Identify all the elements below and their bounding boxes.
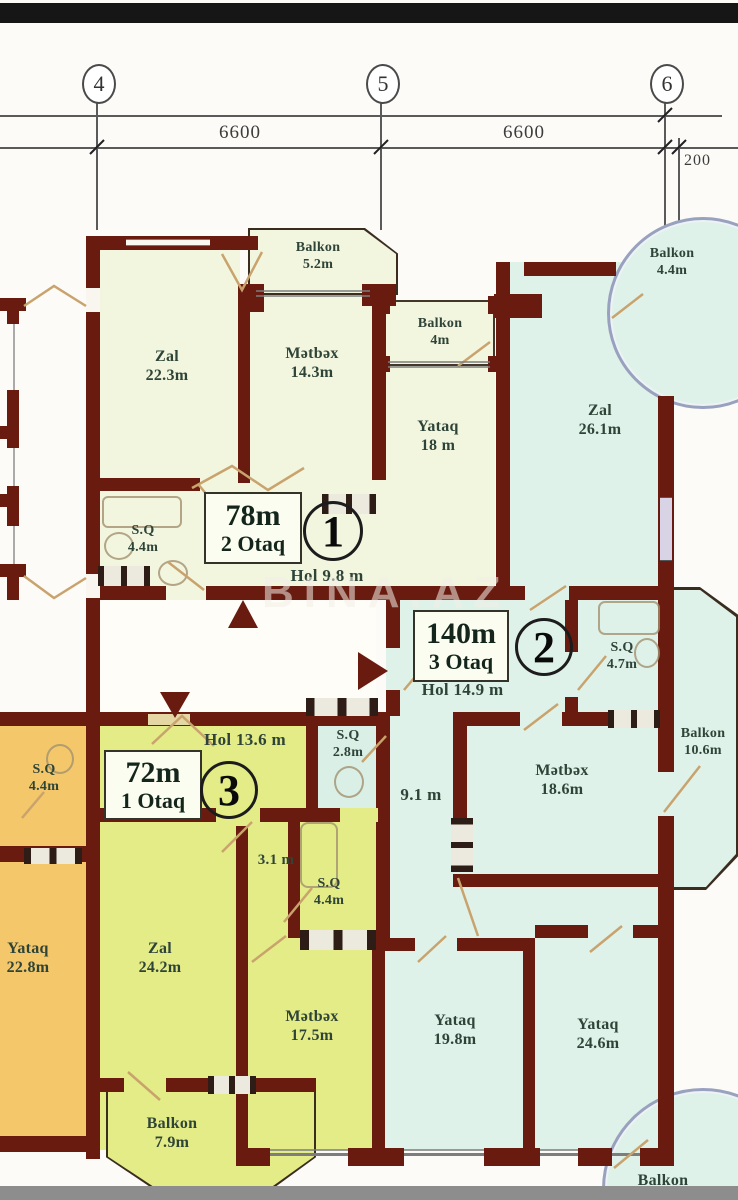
- room-name: Mətbəx: [285, 1008, 338, 1027]
- door-opening: [658, 772, 674, 816]
- bottom-gray-bar: [0, 1186, 738, 1200]
- window-box: [208, 1076, 256, 1094]
- window-box: [98, 566, 150, 586]
- wall-pier: [484, 1148, 540, 1166]
- door-opening: [588, 925, 633, 938]
- hol-text: Hol 14.9 m: [422, 680, 504, 700]
- room-name: S.Q: [317, 876, 340, 893]
- door-opening: [124, 1078, 166, 1092]
- room-area: 14.3m: [291, 364, 334, 383]
- dim-label-200: 200: [684, 152, 711, 170]
- label-apt3-sq: S.Q 4.4m: [300, 876, 358, 909]
- wall: [453, 874, 673, 887]
- wall-pier: [348, 1148, 404, 1166]
- room-area: 24.2m: [139, 959, 182, 978]
- label-apt3-balkon: Balkon 7.9m: [122, 1115, 222, 1153]
- room-name: Balkon: [650, 246, 695, 263]
- room-apt1-yataq: [383, 366, 495, 588]
- apt-rooms-count: 2 Otaq: [221, 532, 285, 556]
- wall-pier: [376, 356, 390, 372]
- label-apt2-sq: S.Q 4.7m: [592, 640, 652, 673]
- watermark-text: BINA.AZ: [262, 568, 510, 617]
- label-apt1-yataq: Yataq 18 m: [388, 418, 488, 456]
- grid-axis-line-6: [664, 98, 666, 230]
- label-apt1-balkon-top: Balkon 5.2m: [268, 240, 368, 273]
- dimension-line-lower: [0, 147, 738, 149]
- label-apt2-balkon-round: Balkon 4.4m: [622, 246, 722, 279]
- label-apt2-hol: Hol 14.9 m: [405, 680, 520, 700]
- room-name: S.Q: [336, 728, 359, 745]
- wall-pier: [7, 564, 19, 600]
- wall: [236, 826, 248, 1156]
- grid-bubble-6: 6: [650, 64, 684, 104]
- room-area: 10.6m: [684, 743, 722, 760]
- wall: [306, 716, 318, 808]
- label-apt3-hol: Hol 13.6 m: [185, 730, 305, 750]
- grid-axis-line-4: [96, 98, 98, 230]
- wall-pier: [488, 296, 502, 314]
- wall-pier: [640, 1148, 674, 1166]
- apt-rooms-count: 1 Otaq: [121, 789, 185, 813]
- room-name: Zal: [155, 348, 179, 367]
- room-area: 4.4m: [314, 893, 344, 910]
- watermark: BINA.AZ: [262, 568, 510, 618]
- room-area: 4m: [430, 333, 449, 350]
- window-box: [608, 710, 660, 728]
- label-apt3-metbex: Mətbəx 17.5m: [262, 1008, 362, 1046]
- room-name: Yataq: [417, 418, 459, 437]
- dim-text: 3.1 m: [258, 852, 295, 870]
- room-name: Mətbəx: [535, 762, 588, 781]
- label-apt2-yataq1: Yataq 19.8m: [405, 1012, 505, 1050]
- wall-pier: [7, 298, 19, 324]
- room-name: Mətbəx: [285, 345, 338, 364]
- wall: [453, 725, 467, 820]
- apt-number: 3: [218, 765, 240, 816]
- room-area: 24.6m: [577, 1035, 620, 1054]
- room-name: Zal: [588, 402, 612, 421]
- window-box: [306, 698, 378, 716]
- door-opening: [415, 938, 457, 951]
- grid-axis-label: 5: [378, 71, 389, 97]
- apt1-area-box: 78m 2 Otaq: [204, 492, 302, 564]
- apt2-number-circle: 2: [515, 618, 573, 676]
- entrance-arrow-right: [358, 652, 388, 690]
- window: [126, 239, 210, 246]
- label-apt2-yataq2: Yataq 24.6m: [548, 1016, 648, 1054]
- room-area: 22.3m: [146, 367, 189, 386]
- dim-label-6600-a: 6600: [210, 122, 270, 144]
- door-opening: [525, 586, 569, 600]
- window-box: [451, 818, 473, 872]
- label-apt2-balkon-side: Balkon 10.6m: [668, 726, 738, 759]
- door-opening: [166, 586, 206, 600]
- grid-axis-label: 6: [662, 71, 673, 97]
- wall: [524, 262, 616, 276]
- wall: [0, 1136, 100, 1152]
- top-black-bar: [0, 3, 738, 23]
- room-name: S.Q: [131, 523, 154, 540]
- door-opening: [340, 808, 378, 822]
- wall-pier: [236, 1148, 270, 1166]
- grid-offset-line: [678, 138, 680, 230]
- dim-text: 6600: [219, 122, 261, 143]
- dimension-line-upper: [0, 115, 722, 117]
- label-apt2-hall-dim: 9.1 m: [390, 785, 452, 805]
- label-apt1-balkon-small: Balkon 4m: [390, 316, 490, 349]
- room-name: Yataq: [7, 940, 49, 959]
- room-area: 7.9m: [155, 1134, 190, 1153]
- room-name: S.Q: [610, 640, 633, 657]
- room-area: 4.4m: [657, 263, 687, 280]
- wall-pier: [578, 1148, 612, 1166]
- dim-text: 6600: [503, 122, 545, 143]
- room-area: 4.7m: [607, 657, 637, 674]
- toilet: [334, 766, 364, 798]
- room-name: Balkon: [147, 1115, 198, 1134]
- apt-area: 78m: [226, 500, 281, 532]
- window: [660, 497, 672, 561]
- dim-text: 9.1 m: [400, 785, 441, 805]
- floor-plan-page: 4 5 6 6600 6600 200: [0, 0, 738, 1200]
- room-area: 2.8m: [333, 745, 363, 762]
- room-name: Balkon: [681, 726, 726, 743]
- label-apt1-sq: S.Q 4.4m: [103, 523, 183, 556]
- apt1-number-circle: 1: [303, 501, 363, 561]
- apt-rooms-count: 3 Otaq: [429, 650, 493, 674]
- room-area: 4.4m: [29, 779, 59, 796]
- entrance-arrow-down: [160, 692, 190, 718]
- room-name: S.Q: [32, 762, 55, 779]
- grid-bubble-4: 4: [82, 64, 116, 104]
- label-left-apt-sq: S.Q 4.4m: [12, 762, 76, 795]
- wall: [372, 288, 386, 480]
- wall: [523, 938, 535, 1151]
- room-area: 26.1m: [579, 421, 622, 440]
- bathtub: [598, 601, 660, 635]
- wall: [372, 938, 385, 1153]
- room-name: Balkon: [418, 316, 463, 333]
- grid-bubble-5: 5: [366, 64, 400, 104]
- wall: [376, 716, 390, 940]
- apt3-number-circle: 3: [200, 761, 258, 819]
- apt2-area-box: 140m 3 Otaq: [413, 610, 509, 682]
- apt-number: 1: [322, 506, 344, 557]
- label-apt2-metbex: Mətbəx 18.6m: [512, 762, 612, 800]
- wall: [238, 293, 250, 483]
- wall-pier: [7, 390, 19, 448]
- room-name: Balkon: [296, 240, 341, 257]
- wall-block: [238, 284, 264, 312]
- room-area: 22.8m: [7, 959, 50, 978]
- label-apt3-sq-small: S.Q 2.8m: [320, 728, 376, 761]
- door-opening: [86, 288, 100, 312]
- grid-axis-line-5: [380, 98, 382, 230]
- label-left-apt-yataq: Yataq 22.8m: [0, 940, 78, 978]
- room-area: 4.4m: [128, 540, 158, 557]
- label-apt3-hall-dim: 3.1 m: [248, 852, 304, 870]
- toilet: [158, 560, 188, 586]
- hol-text: Hol 13.6 m: [204, 730, 286, 750]
- wall: [86, 478, 200, 491]
- window-box: [24, 848, 82, 864]
- label-apt1-zal: Zal 22.3m: [117, 348, 217, 386]
- apt-area: 72m: [126, 757, 181, 789]
- dim-text: 200: [684, 152, 711, 169]
- entrance-arrow-up: [228, 600, 258, 628]
- door-opening: [386, 648, 400, 690]
- room-name: Yataq: [577, 1016, 619, 1035]
- room-name: Yataq: [434, 1012, 476, 1031]
- wall: [86, 236, 100, 1159]
- room-area: 18 m: [421, 437, 456, 456]
- wall-pier: [488, 356, 502, 372]
- apt-number: 2: [533, 622, 555, 673]
- window-box: [300, 930, 376, 950]
- room-area: 18.6m: [541, 781, 584, 800]
- apt3-area-box: 72m 1 Otaq: [104, 750, 202, 820]
- door-opening: [520, 712, 562, 726]
- wall-pier: [0, 426, 18, 439]
- label-apt3-zal: Zal 24.2m: [110, 940, 210, 978]
- grid-axis-label: 4: [94, 71, 105, 97]
- label-apt1-metbex: Mətbəx 14.3m: [262, 345, 362, 383]
- room-area: 5.2m: [303, 257, 333, 274]
- dim-label-6600-b: 6600: [494, 122, 554, 144]
- room-area: 17.5m: [291, 1027, 334, 1046]
- label-apt2-zal: Zal 26.1m: [550, 402, 650, 440]
- wall: [288, 820, 300, 938]
- apt-area: 140m: [426, 618, 496, 650]
- wall-pier: [0, 494, 18, 507]
- room-name: Zal: [148, 940, 172, 959]
- wall-pier: [376, 296, 390, 314]
- room-area: 19.8m: [434, 1031, 477, 1050]
